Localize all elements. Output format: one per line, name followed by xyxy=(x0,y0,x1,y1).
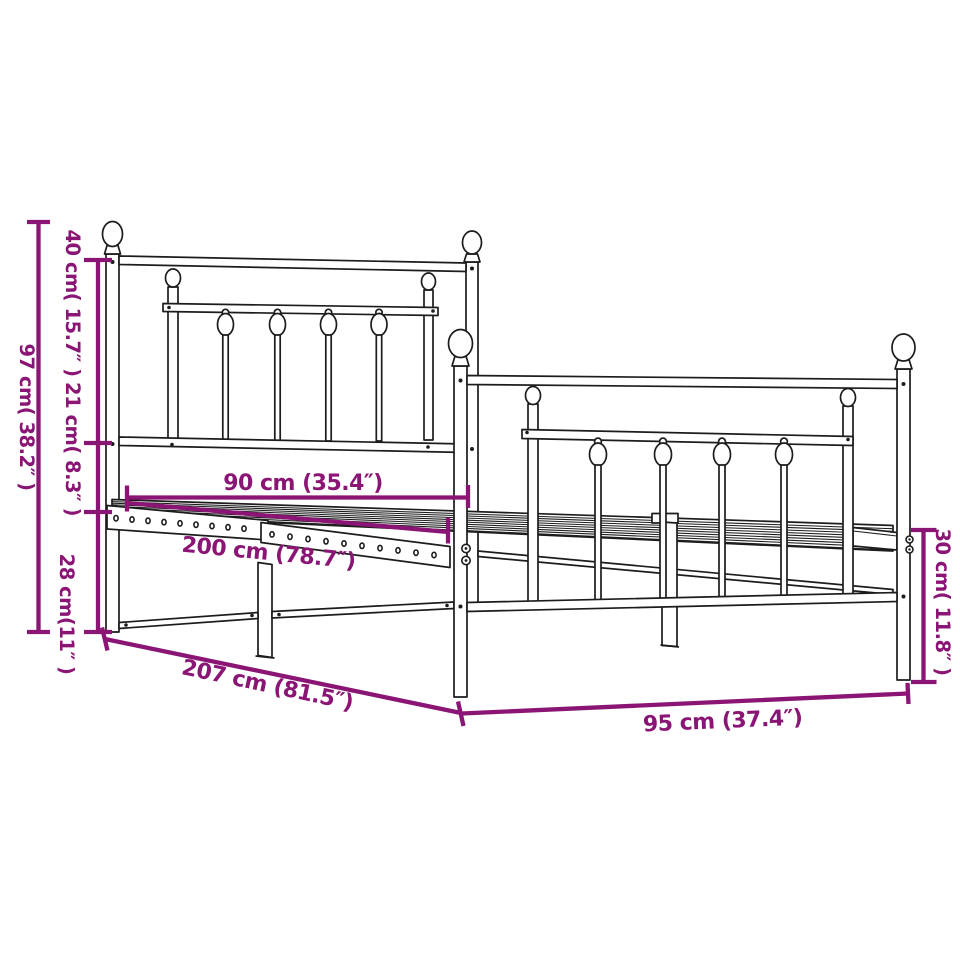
near-stretcher xyxy=(119,613,258,629)
legs-and-stretchers xyxy=(119,563,454,659)
dim-label-headboard-upper: 40 cm( 15.7″ ) xyxy=(61,229,84,376)
finial-collar xyxy=(464,254,480,262)
mid-leg xyxy=(258,563,272,658)
small-ball-finial xyxy=(166,269,181,287)
small-ball-finial xyxy=(422,273,436,290)
near-stretcher xyxy=(272,602,454,618)
headboard-mid-rail xyxy=(163,304,438,316)
dim-label-overall-width: 95 cm (37.4″) xyxy=(642,706,803,738)
dim-label-slat-width: 90 cm (35.4″) xyxy=(223,471,383,496)
footboard-right-post xyxy=(897,369,910,680)
far-stretcher xyxy=(478,551,893,595)
headboard-spindles xyxy=(218,309,388,441)
dim-label-base-height: 28 cm(11″ ) xyxy=(55,554,78,675)
ball-finial xyxy=(892,334,915,361)
footboard-left-post xyxy=(454,366,467,697)
diagram-canvas: 97 cm( 38.2″ ) 40 cm( 15.7″ ) 21 cm( 8.3… xyxy=(0,0,960,960)
footboard-inner-post xyxy=(843,406,853,596)
ball-finial xyxy=(463,231,482,254)
dim-label-footboard-height: 30 cm( 11.8″ ) xyxy=(931,528,954,675)
footboard-mid-rail xyxy=(522,430,853,446)
dim-label-overall-length: 207 cm (81.5″) xyxy=(179,655,355,716)
ball-finial xyxy=(449,330,473,358)
bed-frame-dimension-diagram: 97 cm( 38.2″ ) 40 cm( 15.7″ ) 21 cm( 8.3… xyxy=(0,0,960,960)
dimension-lines xyxy=(27,222,937,726)
small-ball-finial xyxy=(526,387,541,405)
dimension-labels: 97 cm( 38.2″ ) 40 cm( 15.7″ ) 21 cm( 8.3… xyxy=(15,229,954,737)
small-ball-finial xyxy=(841,389,856,407)
dim-label-headboard-lower: 21 cm( 8.3″ ) xyxy=(61,382,84,516)
dim-label-overall-height: 97 cm( 38.2″ ) xyxy=(15,343,38,490)
ball-finial xyxy=(103,222,123,247)
headboard xyxy=(103,222,482,633)
dim-line-overall-width xyxy=(462,683,909,714)
